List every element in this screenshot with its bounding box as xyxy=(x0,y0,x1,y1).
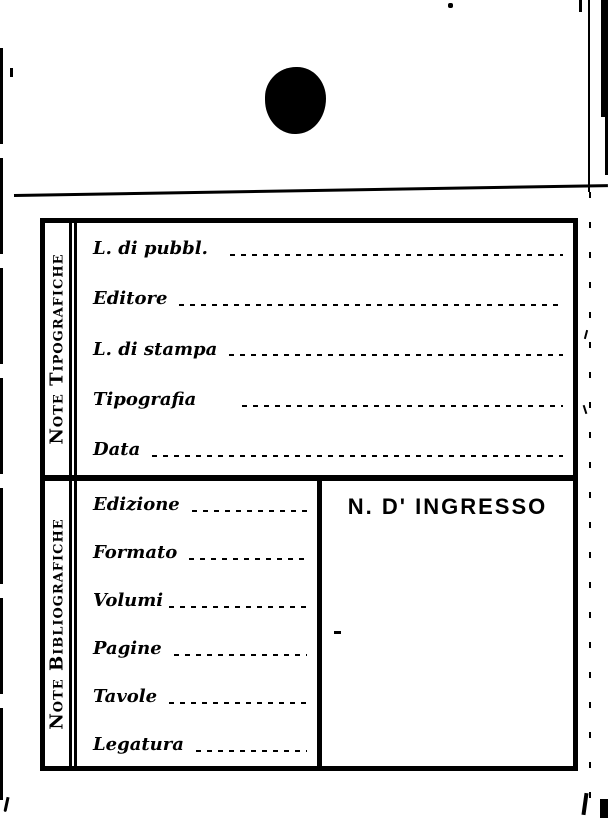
scan-right-edge-line xyxy=(588,0,590,192)
bibliografiche-fields: Edizione Formato Volumi Pagine Tavole xyxy=(77,481,317,766)
fill-in-line xyxy=(230,254,563,256)
field-row-l-di-pubbl: L. di pubbl. xyxy=(77,239,573,260)
field-row-formato: Formato xyxy=(77,543,317,564)
field-row-tipografia: Tipografia xyxy=(77,390,573,411)
fill-in-line xyxy=(242,405,563,407)
hole-punch-dot xyxy=(265,67,326,134)
tipografiche-fields: L. di pubbl. Editore L. di stampa Tipogr… xyxy=(77,223,573,475)
scan-edge-strip xyxy=(601,0,608,117)
scan-corner-mark xyxy=(600,799,608,818)
side-label-column-bibliografiche: Note Bibliografiche xyxy=(45,481,77,766)
field-row-legatura: Legatura xyxy=(77,735,317,756)
field-label: Tipografia xyxy=(77,390,196,411)
field-label: L. di stampa xyxy=(77,340,217,361)
fill-in-line xyxy=(152,455,563,457)
scan-speck xyxy=(579,0,582,12)
field-label: Formato xyxy=(77,543,177,564)
field-label: Pagine xyxy=(77,639,162,660)
scan-right-edge-line xyxy=(589,192,591,818)
scan-speck xyxy=(334,631,341,634)
section-title-tipografiche: Note Tipografiche xyxy=(47,253,68,444)
scan-speck xyxy=(584,330,588,339)
scan-curl-mark xyxy=(3,797,9,812)
fill-in-line xyxy=(189,558,307,560)
field-row-pagine: Pagine xyxy=(77,639,317,660)
catalog-card: Note Tipografiche L. di pubbl. Editore L… xyxy=(40,218,578,771)
fill-in-line xyxy=(169,606,307,608)
field-label: Data xyxy=(77,440,140,461)
fill-in-line xyxy=(229,354,563,356)
field-row-tavole: Tavole xyxy=(77,687,317,708)
side-label-column-tipografiche: Note Tipografiche xyxy=(45,223,77,475)
field-label: Tavole xyxy=(77,687,157,708)
scan-speck xyxy=(10,68,13,77)
fill-in-line xyxy=(196,750,307,752)
field-row-volumi: Volumi xyxy=(77,591,317,612)
ingresso-heading: N. D' INGRESSO xyxy=(322,494,573,520)
section-title-bibliografiche: Note Bibliografiche xyxy=(47,518,68,729)
field-label: L. di pubbl. xyxy=(77,239,208,260)
scan-speck xyxy=(448,3,453,8)
section-note-bibliografiche: Note Bibliografiche Edizione Formato Vol… xyxy=(45,481,573,766)
fill-in-line xyxy=(169,702,307,704)
section-note-tipografiche: Note Tipografiche L. di pubbl. Editore L… xyxy=(45,223,573,475)
ingresso-cell: N. D' INGRESSO xyxy=(322,481,573,766)
field-row-editore: Editore xyxy=(77,289,573,310)
field-label: Legatura xyxy=(77,735,184,756)
field-label: Volumi xyxy=(77,591,163,612)
scan-horizontal-rule xyxy=(14,184,608,197)
fill-in-line xyxy=(179,304,563,306)
field-row-data: Data xyxy=(77,440,573,461)
field-label: Editore xyxy=(77,289,167,310)
field-row-l-di-stampa: L. di stampa xyxy=(77,340,573,361)
scan-speck xyxy=(583,405,588,414)
field-row-edizione: Edizione xyxy=(77,495,317,516)
fill-in-line xyxy=(192,510,307,512)
scan-speck xyxy=(581,793,588,815)
fill-in-line xyxy=(174,654,307,656)
scan-left-edge-line xyxy=(0,48,3,800)
scanned-library-card-page: Note Tipografiche L. di pubbl. Editore L… xyxy=(0,0,608,818)
field-label: Edizione xyxy=(77,495,180,516)
